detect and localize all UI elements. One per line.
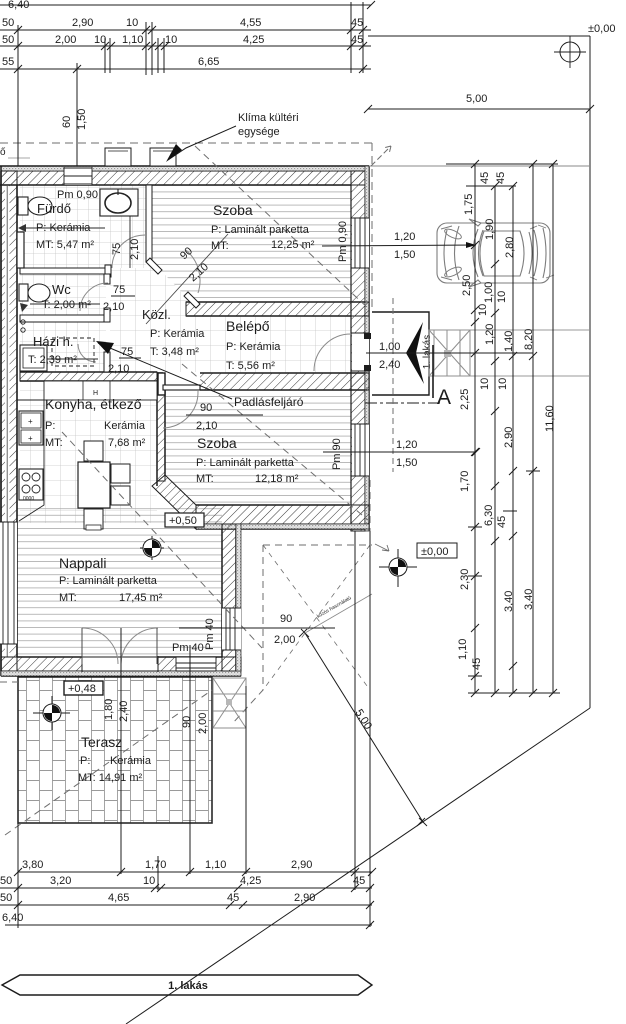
svg-text:2,80: 2,80 — [504, 237, 516, 258]
svg-text:2,40: 2,40 — [379, 359, 400, 371]
svg-text:45: 45 — [471, 658, 483, 670]
svg-text:2,25: 2,25 — [459, 389, 471, 410]
svg-text:90: 90 — [181, 716, 193, 728]
svg-text:±0,00: ±0,00 — [588, 23, 615, 35]
svg-text:Padlásfeljáró: Padlásfeljáró — [234, 395, 304, 409]
svg-text:2,90: 2,90 — [503, 427, 515, 448]
svg-text:1,50: 1,50 — [394, 249, 415, 261]
svg-text:11,60: 11,60 — [544, 405, 556, 432]
svg-text:1,00: 1,00 — [483, 282, 495, 303]
svg-text:1,50: 1,50 — [76, 109, 88, 130]
svg-text:10: 10 — [126, 17, 138, 29]
svg-text:10: 10 — [165, 34, 177, 46]
svg-text:10: 10 — [94, 34, 106, 46]
svg-text:60: 60 — [61, 116, 73, 128]
svg-text:Pm 40: Pm 40 — [172, 642, 204, 654]
svg-text:1,80: 1,80 — [103, 699, 115, 720]
svg-text:6,40: 6,40 — [2, 912, 23, 924]
svg-text:T: 2,39 m²: T: 2,39 m² — [28, 354, 77, 366]
svg-text:2,10: 2,10 — [108, 363, 129, 375]
svg-text:Terasz: Terasz — [81, 734, 122, 750]
svg-text:1,10: 1,10 — [457, 639, 469, 660]
svg-text:P: Laminált parketta: P: Laminált parketta — [196, 457, 295, 469]
svg-text:0000: 0000 — [23, 496, 34, 502]
svg-text:1,20: 1,20 — [394, 231, 415, 243]
svg-text:Kerámia: Kerámia — [104, 420, 146, 432]
svg-text:12,18 m²: 12,18 m² — [255, 473, 299, 485]
svg-text:2,00: 2,00 — [197, 713, 209, 734]
svg-text:T: 3,48 m²: T: 3,48 m² — [150, 346, 199, 358]
svg-text:Kerámia: Kerámia — [110, 755, 152, 767]
svg-text:2,10: 2,10 — [103, 301, 124, 313]
svg-text:1,50: 1,50 — [396, 457, 417, 469]
svg-text:2,50: 2,50 — [461, 275, 473, 296]
svg-text:6,65: 6,65 — [198, 56, 219, 68]
svg-text:Fürdő: Fürdő — [37, 201, 71, 216]
svg-text:Pm 40: Pm 40 — [204, 618, 216, 650]
svg-text:Szoba: Szoba — [197, 435, 237, 451]
svg-text:MT:: MT: — [196, 473, 214, 485]
svg-text:50: 50 — [0, 892, 12, 904]
svg-text:10: 10 — [143, 875, 155, 887]
svg-text:MT: 5,47 m²: MT: 5,47 m² — [36, 239, 94, 251]
svg-text:17,45 m²: 17,45 m² — [119, 592, 163, 604]
svg-text:Pm 0,90: Pm 0,90 — [337, 221, 349, 262]
svg-text:4,25: 4,25 — [243, 34, 264, 46]
svg-text:75: 75 — [113, 284, 125, 296]
svg-text:3,40: 3,40 — [503, 591, 515, 612]
svg-text:+: + — [28, 417, 33, 426]
svg-text:MT: 14,91 m²: MT: 14,91 m² — [78, 772, 143, 784]
svg-text:Közl.: Közl. — [142, 307, 171, 322]
svg-text:4,25: 4,25 — [240, 875, 261, 887]
svg-text:50: 50 — [2, 17, 14, 29]
svg-text:Belépő: Belépő — [226, 318, 270, 334]
svg-text:50: 50 — [2, 34, 14, 46]
svg-text:+0,50: +0,50 — [169, 515, 197, 527]
svg-text:10: 10 — [479, 378, 491, 390]
svg-text:MT:: MT: — [59, 592, 77, 604]
svg-text:10: 10 — [496, 291, 508, 303]
svg-text:45: 45 — [495, 172, 507, 184]
svg-text:P:: P: — [45, 420, 55, 432]
svg-text:4,55: 4,55 — [240, 17, 261, 29]
svg-text:P: Laminált parketta: P: Laminált parketta — [211, 224, 310, 236]
svg-text:Konyha, étkező: Konyha, étkező — [45, 396, 142, 412]
svg-text:4,65: 4,65 — [108, 892, 129, 904]
svg-text:Nappali: Nappali — [59, 555, 106, 571]
svg-text:75: 75 — [121, 346, 133, 358]
svg-text:45: 45 — [227, 892, 239, 904]
svg-text:Klíma kültéri: Klíma kültéri — [238, 112, 299, 124]
svg-text:90: 90 — [280, 613, 292, 625]
svg-text:MT:: MT: — [45, 437, 63, 449]
svg-text:2,10: 2,10 — [129, 239, 141, 260]
svg-text:Wc: Wc — [52, 282, 71, 297]
svg-text:+: + — [28, 434, 33, 443]
svg-text:T: 5,56 m²: T: 5,56 m² — [226, 360, 275, 372]
svg-text:1,40: 1,40 — [503, 331, 515, 352]
svg-text:egysége: egysége — [238, 126, 280, 138]
svg-text:2,90: 2,90 — [294, 892, 315, 904]
svg-text:2,30: 2,30 — [459, 569, 471, 590]
svg-text:Szoba: Szoba — [213, 202, 253, 218]
svg-text:P: Kerámia: P: Kerámia — [226, 341, 281, 353]
svg-text:MT:: MT: — [211, 240, 229, 252]
svg-text:55: 55 — [2, 56, 14, 68]
svg-text:2,10: 2,10 — [196, 420, 217, 432]
svg-text:45: 45 — [353, 875, 365, 887]
svg-text:Pm 90: Pm 90 — [331, 438, 343, 470]
svg-text:2,90: 2,90 — [72, 17, 93, 29]
svg-text:1,10: 1,10 — [205, 859, 226, 871]
svg-text:5,00: 5,00 — [466, 93, 487, 105]
svg-text:1,90: 1,90 — [484, 219, 496, 240]
svg-text:+0,48: +0,48 — [68, 683, 96, 695]
svg-text:45: 45 — [351, 17, 363, 29]
svg-text:ő: ő — [0, 147, 6, 158]
svg-text:45: 45 — [351, 34, 363, 46]
svg-text:50: 50 — [0, 875, 12, 887]
svg-text:A: A — [437, 386, 451, 409]
svg-text:10: 10 — [477, 304, 489, 316]
svg-text:1,00: 1,00 — [379, 341, 400, 353]
svg-text:P: Laminált parketta: P: Laminált parketta — [59, 575, 158, 587]
svg-text:90: 90 — [200, 402, 212, 414]
svg-text:6,30: 6,30 — [483, 505, 495, 526]
svg-text:P: Kerámia: P: Kerámia — [36, 222, 91, 234]
svg-text:12,25 m²: 12,25 m² — [271, 239, 315, 251]
svg-text:3,80: 3,80 — [22, 859, 43, 871]
svg-text:Pm 0,90: Pm 0,90 — [57, 189, 98, 201]
svg-text:45: 45 — [479, 172, 491, 184]
svg-text:1,70: 1,70 — [459, 471, 471, 492]
svg-text:75: 75 — [111, 243, 123, 255]
svg-text:1,70: 1,70 — [145, 859, 166, 871]
svg-text:45: 45 — [496, 516, 508, 528]
svg-text:1,20: 1,20 — [396, 439, 417, 451]
svg-text:2,40: 2,40 — [118, 701, 130, 722]
svg-text:P: Kerámia: P: Kerámia — [150, 328, 205, 340]
svg-text:1,75: 1,75 — [463, 194, 475, 215]
svg-text:7,68 m²: 7,68 m² — [108, 437, 146, 449]
svg-text:10: 10 — [497, 378, 509, 390]
svg-text:Házi h.: Házi h. — [33, 334, 73, 349]
svg-text:6,40: 6,40 — [8, 0, 29, 11]
svg-text:3,20: 3,20 — [50, 875, 71, 887]
svg-text:2,00: 2,00 — [55, 34, 76, 46]
svg-text:2,00: 2,00 — [274, 634, 295, 646]
svg-text:8,20: 8,20 — [523, 329, 535, 350]
svg-text:1,20: 1,20 — [484, 324, 496, 345]
svg-text:1. lakás: 1. lakás — [422, 335, 433, 369]
svg-text:P:: P: — [80, 755, 90, 767]
svg-text:T: 2,00 m²: T: 2,00 m² — [42, 299, 91, 311]
svg-text:1,10: 1,10 — [122, 34, 143, 46]
svg-text:3,40: 3,40 — [523, 589, 535, 610]
svg-text:2,90: 2,90 — [291, 859, 312, 871]
svg-text:±0,00: ±0,00 — [421, 546, 448, 558]
